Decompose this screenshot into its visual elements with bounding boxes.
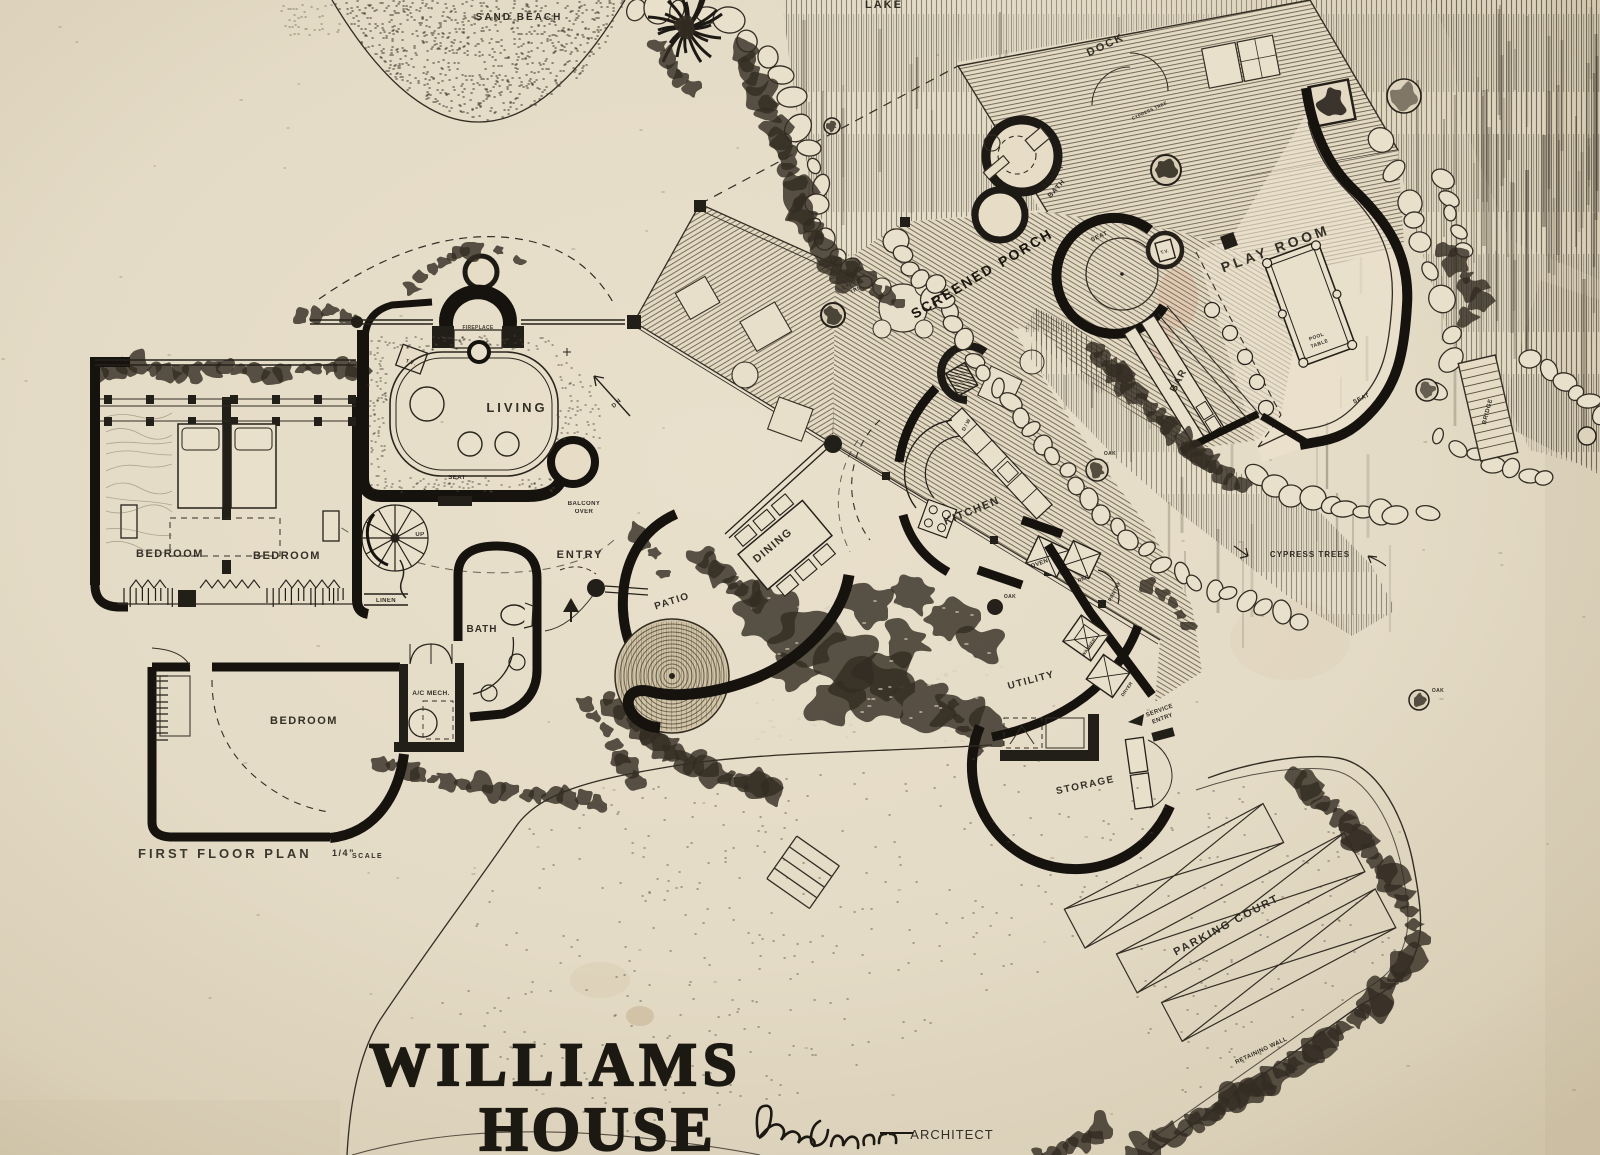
svg-text:ARCHITECT: ARCHITECT: [910, 1127, 993, 1142]
svg-text:SEAT: SEAT: [448, 475, 466, 481]
svg-text:OAK: OAK: [1104, 451, 1116, 457]
svg-text:LAKE: LAKE: [865, 0, 903, 11]
svg-text:LIVING: LIVING: [486, 400, 547, 415]
svg-text:SCALE: SCALE: [352, 853, 383, 860]
svg-text:BEDROOM: BEDROOM: [136, 548, 204, 560]
svg-text:UP: UP: [415, 532, 424, 538]
svg-text:OAK: OAK: [1004, 594, 1016, 600]
svg-text:BRD DRS: BRD DRS: [1011, 753, 1033, 758]
svg-text:LINEN: LINEN: [376, 598, 396, 604]
svg-text:FIRST FLOOR PLAN: FIRST FLOOR PLAN: [138, 846, 312, 861]
svg-text:OVER: OVER: [575, 509, 594, 515]
svg-text:OAK: OAK: [1432, 688, 1444, 694]
svg-text:BATH: BATH: [466, 624, 497, 635]
svg-text:HOUSE: HOUSE: [479, 1096, 716, 1155]
svg-text:FIREPLACE: FIREPLACE: [462, 325, 493, 331]
svg-text:CYPRESS TREES: CYPRESS TREES: [1270, 550, 1350, 559]
svg-text:SAND BEACH: SAND BEACH: [476, 12, 563, 23]
svg-text:WILLIAMS: WILLIAMS: [369, 1032, 742, 1099]
svg-text:BALCONY: BALCONY: [568, 501, 600, 507]
svg-text:BEDROOM: BEDROOM: [253, 550, 321, 562]
svg-text:ENTRY: ENTRY: [557, 549, 604, 561]
svg-text:BEDROOM: BEDROOM: [270, 715, 338, 727]
svg-text:A/C MECH.: A/C MECH.: [412, 690, 450, 697]
